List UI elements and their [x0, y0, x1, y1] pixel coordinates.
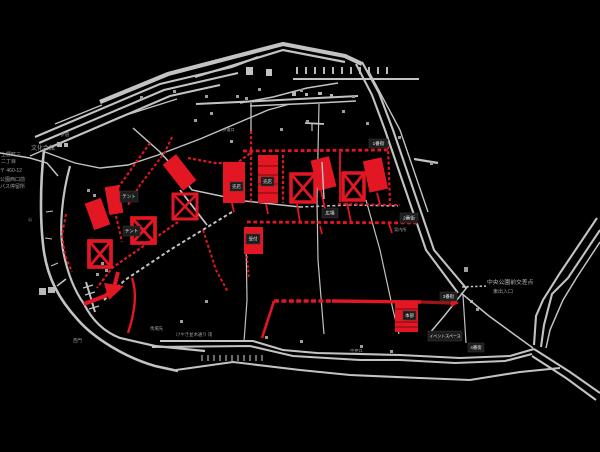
svg-text:二丁目: 二丁目 [1, 159, 16, 165]
svg-text:広場: 広場 [325, 210, 335, 217]
svg-text:参道: 参道 [60, 131, 70, 138]
svg-text:歩道口: 歩道口 [222, 126, 235, 133]
svg-text:4番街: 4番街 [470, 344, 482, 351]
svg-text:東出入口: 東出入口 [493, 288, 513, 295]
svg-text:2番街: 2番街 [403, 215, 415, 222]
svg-text:案内所: 案内所 [394, 226, 407, 233]
svg-text:中央公園前交差点: 中央公園前交差点 [487, 278, 534, 286]
svg-text:文化会館: 文化会館 [31, 144, 55, 152]
svg-text:〒 460-12: 〒 460-12 [0, 168, 22, 174]
svg-text:上野町三: 上野町三 [1, 151, 21, 158]
svg-text:公園西口前: 公園西口前 [0, 176, 25, 183]
svg-text:本部: 本部 [405, 312, 414, 319]
svg-text:1番街: 1番街 [373, 140, 385, 147]
svg-text:3番街: 3番街 [443, 293, 455, 300]
svg-text:受付: 受付 [249, 236, 258, 243]
svg-text:バス停留所: バス停留所 [0, 183, 25, 190]
svg-text:イベントスペース: イベントスペース [429, 332, 461, 338]
svg-text:売店: 売店 [263, 178, 272, 185]
svg-text:中央口: 中央口 [350, 347, 363, 354]
svg-text:馬場先: 馬場先 [150, 325, 164, 332]
svg-text:売店: 売店 [232, 183, 241, 190]
svg-text:けやき並木通り 南: けやき並木通り 南 [176, 331, 213, 338]
